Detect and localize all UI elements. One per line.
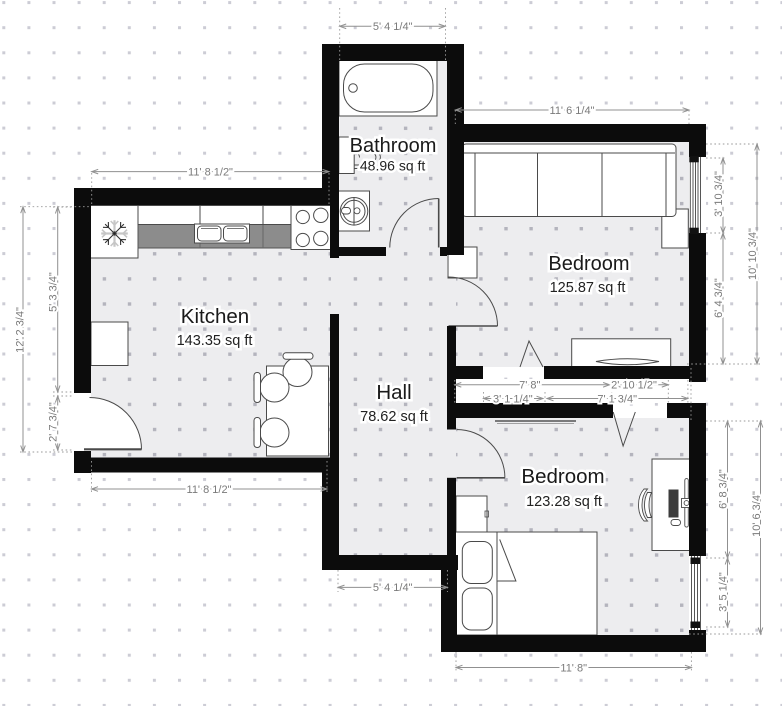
svg-text:11' 6 1/4": 11' 6 1/4" <box>550 105 595 117</box>
svg-text:48.96 sq ft: 48.96 sq ft <box>360 158 425 174</box>
svg-text:143.35 sq ft: 143.35 sq ft <box>177 333 253 349</box>
svg-text:7' 8": 7' 8" <box>519 380 540 392</box>
svg-text:11' 8 1/2": 11' 8 1/2" <box>187 484 232 496</box>
svg-text:2' 7 3/4": 2' 7 3/4" <box>47 402 59 442</box>
svg-text:10' 10 3/4": 10' 10 3/4" <box>747 228 759 280</box>
svg-text:2' 10 1/2": 2' 10 1/2" <box>611 380 657 392</box>
svg-text:12' 2 3/4": 12' 2 3/4" <box>14 307 26 353</box>
svg-text:3' 5 1/4": 3' 5 1/4" <box>717 572 729 612</box>
svg-text:11' 8 1/2": 11' 8 1/2" <box>188 166 233 178</box>
svg-text:6' 4 3/4": 6' 4 3/4" <box>713 278 725 318</box>
svg-text:Bathroom: Bathroom <box>350 135 437 157</box>
svg-text:10' 6 3/4": 10' 6 3/4" <box>751 491 763 537</box>
svg-text:Bedroom: Bedroom <box>521 465 604 488</box>
svg-text:78.62 sq ft: 78.62 sq ft <box>360 409 428 425</box>
svg-text:5' 4 1/4": 5' 4 1/4" <box>373 21 413 33</box>
svg-text:Bedroom: Bedroom <box>548 253 629 275</box>
svg-text:Kitchen: Kitchen <box>181 305 249 328</box>
svg-text:123.28 sq ft: 123.28 sq ft <box>526 494 602 510</box>
svg-text:7' 1 3/4": 7' 1 3/4" <box>597 393 637 405</box>
svg-text:6' 8 3/4": 6' 8 3/4" <box>717 469 729 509</box>
svg-text:125.87 sq ft: 125.87 sq ft <box>550 280 626 296</box>
svg-text:5' 4 1/4": 5' 4 1/4" <box>373 582 413 594</box>
svg-text:3' 1 1/4": 3' 1 1/4" <box>493 393 533 405</box>
svg-text:Hall: Hall <box>376 381 411 404</box>
svg-text:11' 8": 11' 8" <box>560 662 587 674</box>
svg-text:5' 3 3/4": 5' 3 3/4" <box>47 272 59 312</box>
svg-text:3' 10 3/4": 3' 10 3/4" <box>713 171 725 217</box>
